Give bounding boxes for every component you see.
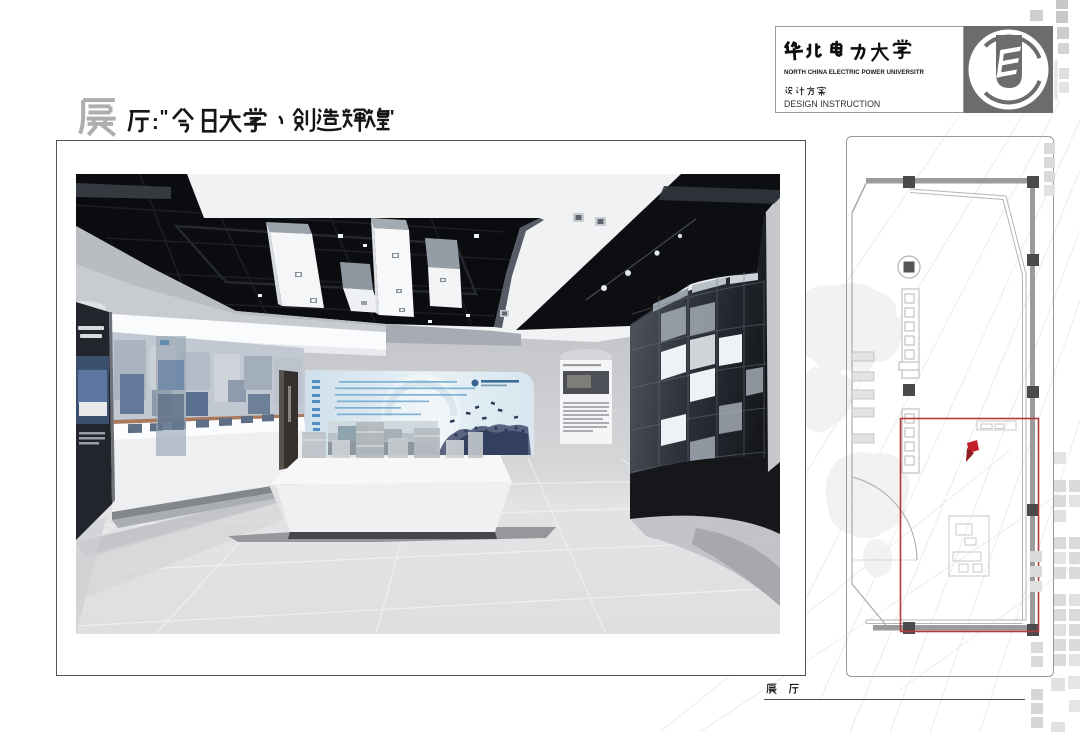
svg-text::: : [152, 111, 159, 134]
svg-text:": " [386, 107, 395, 128]
svg-text:": " [159, 107, 168, 128]
